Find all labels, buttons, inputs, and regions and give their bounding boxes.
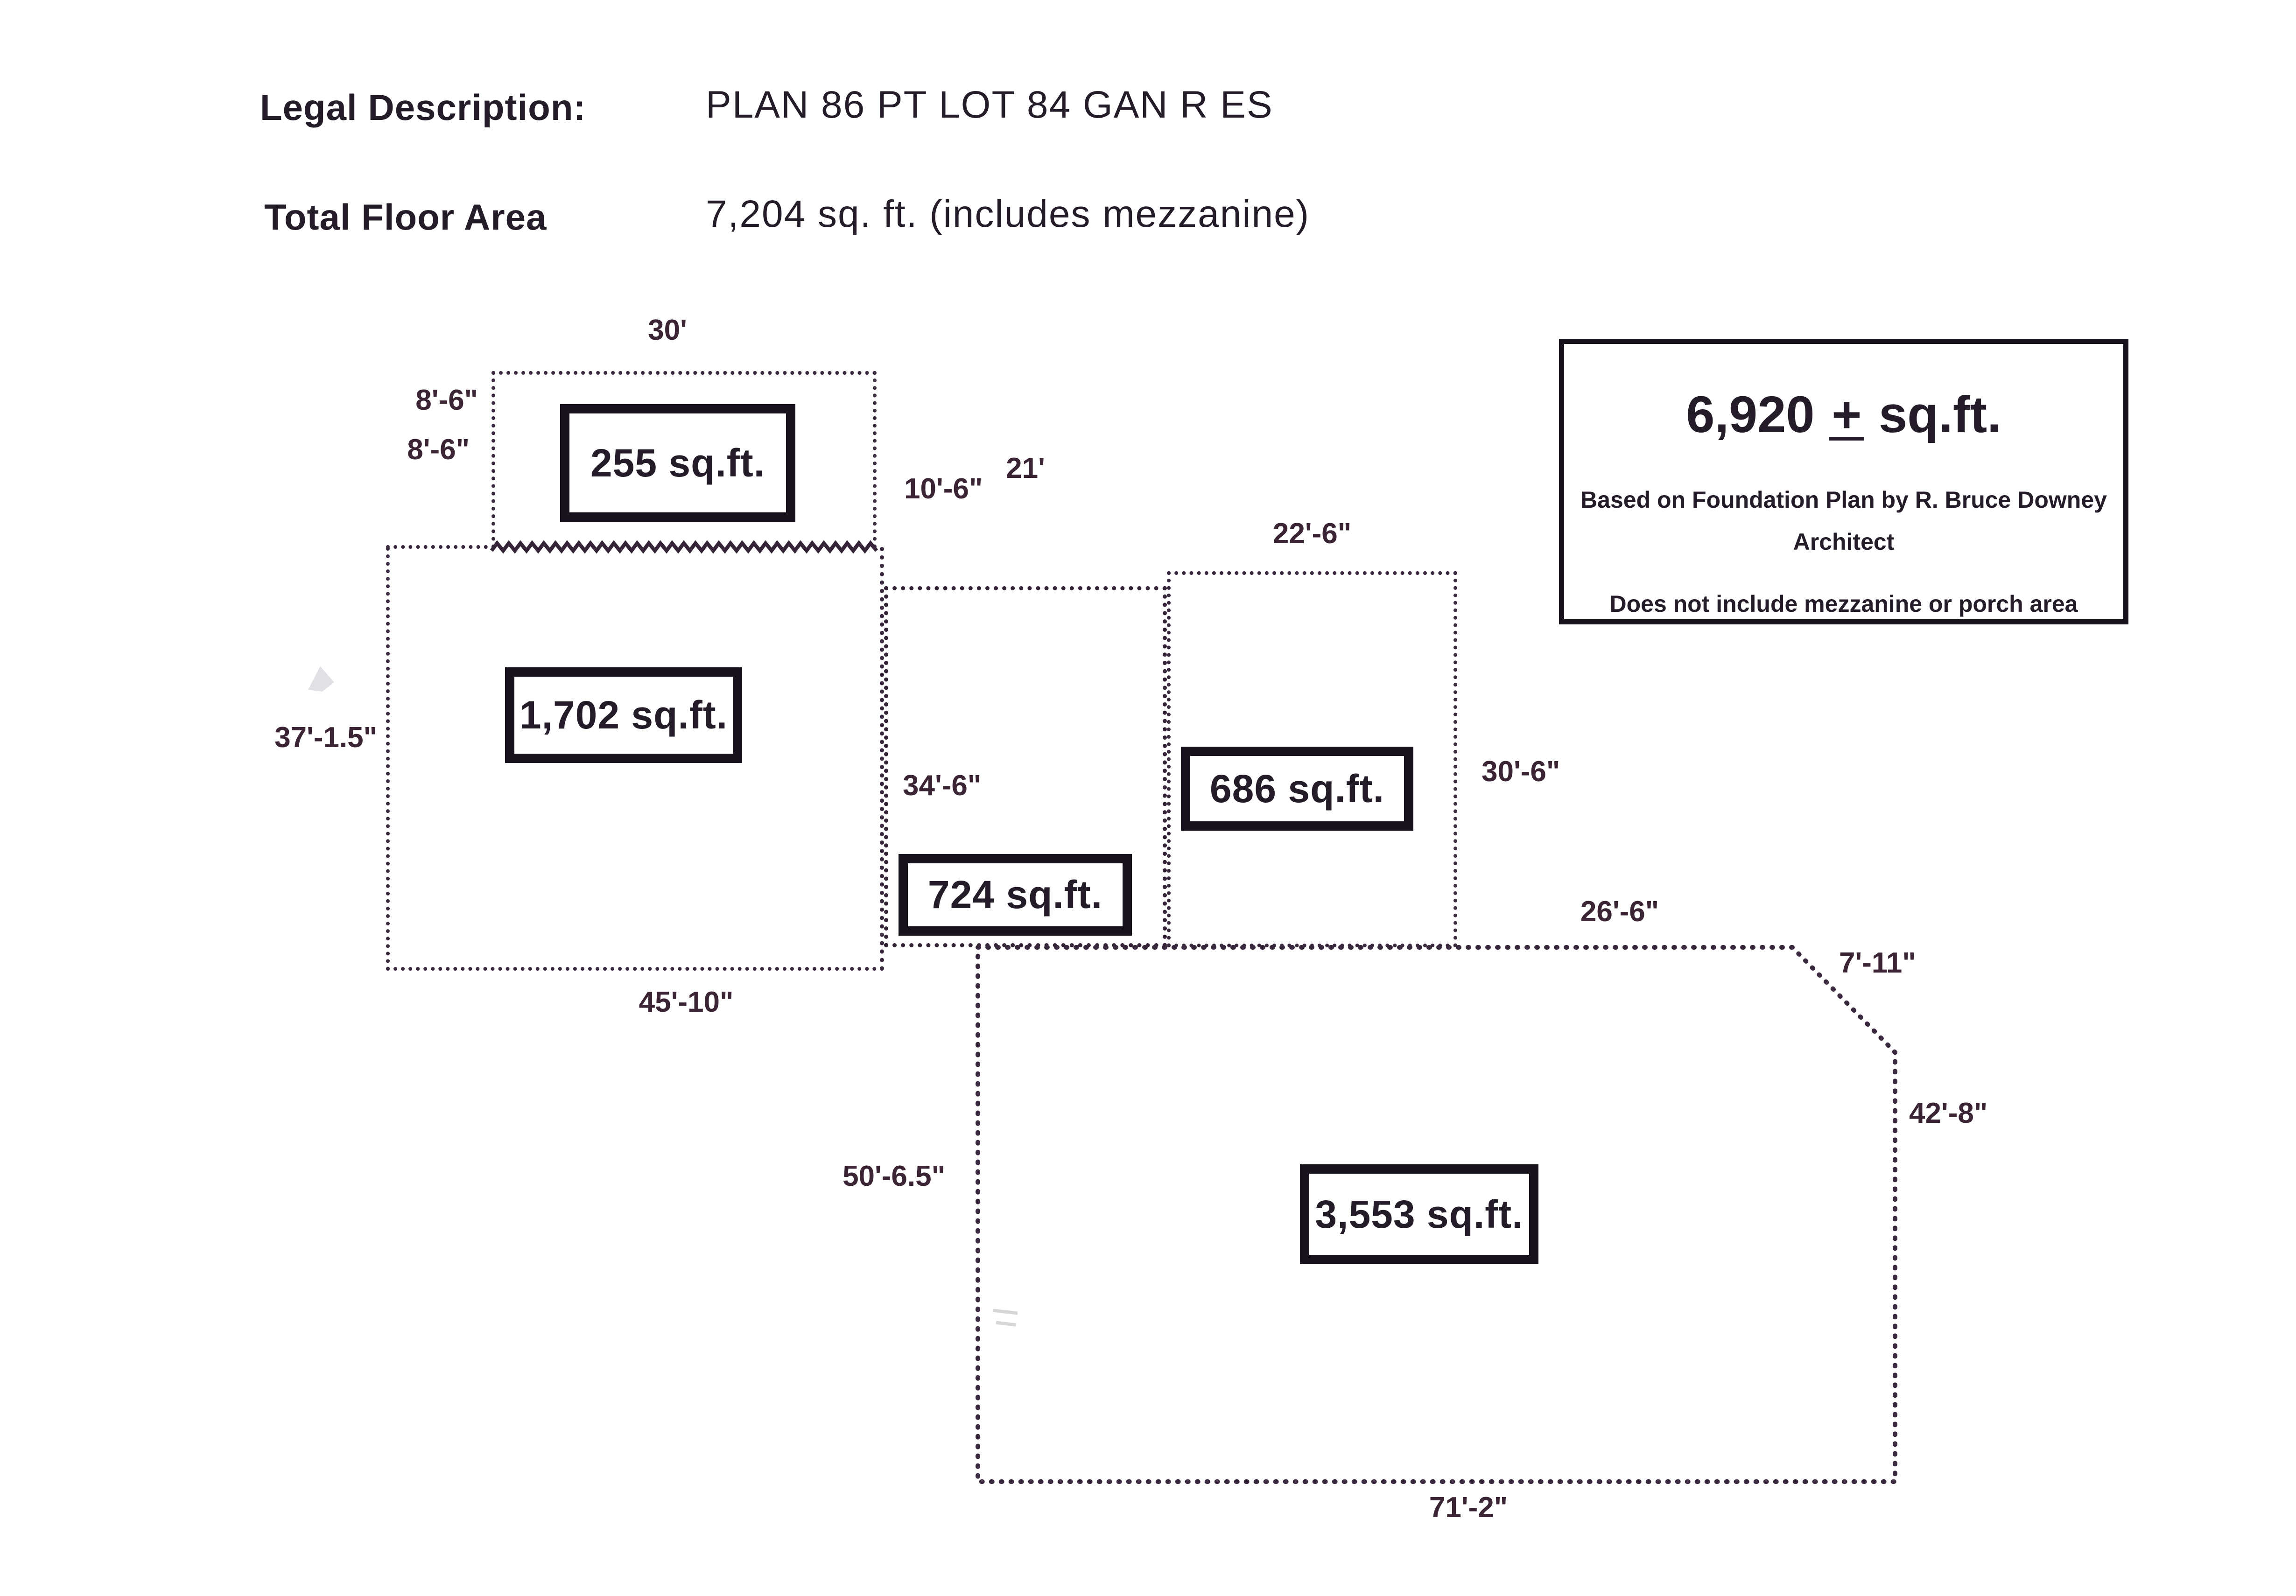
dim-bottom-right: 42'-8" — [1909, 1097, 1987, 1130]
dim-bottom-top: 26'-6" — [1580, 895, 1659, 928]
mid-area-box: 724 sq.ft. — [899, 854, 1132, 936]
dim-bottom-bottom: 71'-2" — [1429, 1491, 1508, 1524]
bottom-area-label: 3,553 sq.ft. — [1315, 1192, 1523, 1237]
plan-drawing-layer — [0, 0, 2296, 1596]
dim-bottom-left: 50'-6.5" — [843, 1160, 945, 1193]
dim-porch-left-lower: 8'-6" — [407, 433, 470, 466]
porch-area-label: 255 sq.ft. — [590, 441, 765, 486]
dim-main-bottom: 45'-10" — [639, 986, 734, 1019]
dim-mid-left: 34'-6" — [903, 769, 981, 802]
porch-area-box: 255 sq.ft. — [560, 404, 795, 522]
dim-mid-top: 21' — [1006, 452, 1045, 485]
bottom-area-box: 3,553 sq.ft. — [1300, 1164, 1538, 1264]
dim-right-top: 22'-6" — [1273, 517, 1351, 550]
dim-main-left: 37'-1.5" — [274, 721, 377, 754]
dim-porch-left-upper: 8'-6" — [415, 384, 478, 417]
porch-zigzag-edge — [491, 543, 877, 551]
mid-area-label: 724 sq.ft. — [928, 872, 1102, 917]
scan-smudge-2 — [993, 1310, 1018, 1325]
main-area-label: 1,702 sq.ft. — [520, 693, 728, 738]
right-area-label: 686 sq.ft. — [1210, 766, 1384, 812]
dim-porch-top: 30' — [648, 314, 687, 347]
main-area-box: 1,702 sq.ft. — [505, 667, 742, 763]
dim-porch-right: 10'-6" — [904, 472, 983, 505]
dim-right-right: 30'-6" — [1482, 755, 1560, 788]
right-area-box: 686 sq.ft. — [1181, 747, 1413, 831]
scan-smudge-1 — [308, 666, 334, 692]
scanned-floor-plan-page: Legal Description: PLAN 86 PT LOT 84 GAN… — [0, 0, 2296, 1596]
dim-bottom-diagonal: 7'-11" — [1839, 946, 1916, 980]
